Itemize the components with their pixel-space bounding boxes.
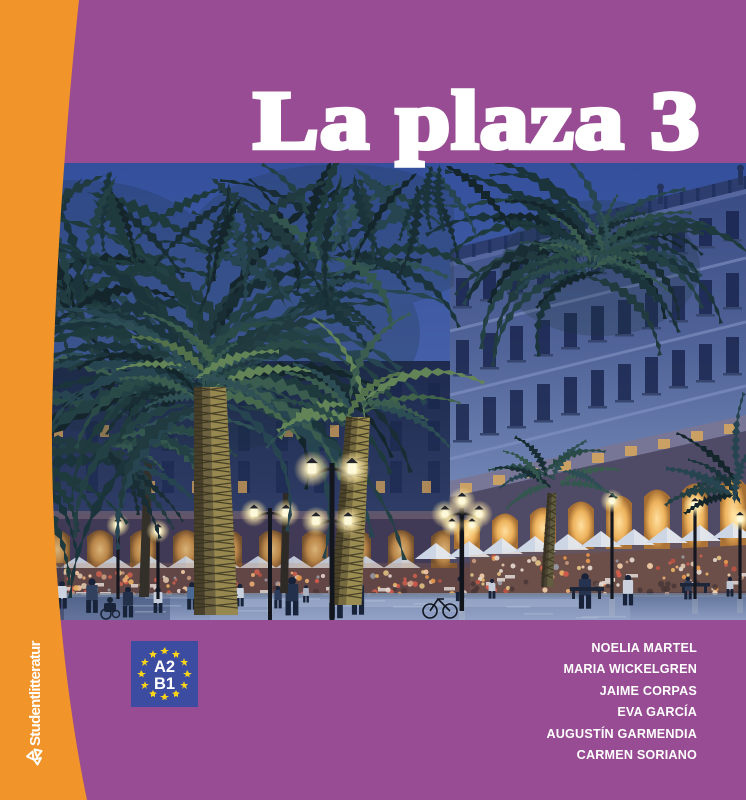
svg-text:B1: B1 bbox=[154, 675, 175, 693]
svg-text:A2: A2 bbox=[154, 658, 175, 676]
